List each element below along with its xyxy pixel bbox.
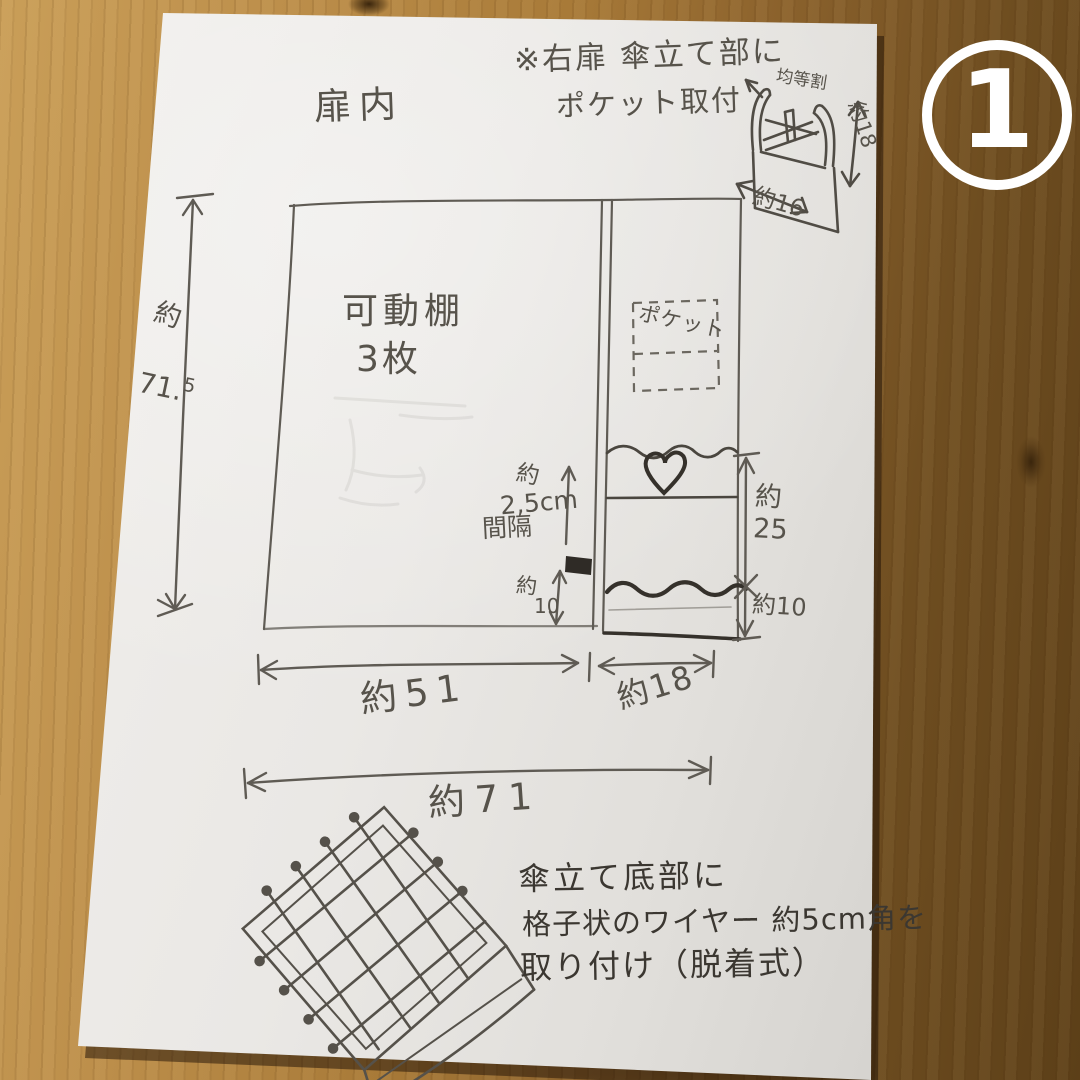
width-total-dim: 約71 <box>427 774 544 826</box>
shelf-count-label: 3枚 <box>356 338 421 381</box>
hook-mark <box>565 556 592 575</box>
photo-of-hand-drawn-plan: 扉内 ※右扉 傘立て部に ポケット取付 均等割 約18 約16 可動棚 3枚 ポ… <box>0 0 1080 1080</box>
page-number-badge: 1 <box>922 40 1072 190</box>
right-upper-dim: 約 25 <box>752 481 790 547</box>
area-label: 扉内 <box>313 82 404 130</box>
bottom-note-line2: 格子状のワイヤー 約5cm角を <box>522 900 928 942</box>
wire-grid-sketch <box>219 786 541 1080</box>
right-door-decor <box>604 446 746 639</box>
cabinet-outline <box>264 199 741 641</box>
divider-bottom-dim-value: 10 <box>534 594 559 618</box>
gap-note-line3: 間隔 <box>481 512 533 545</box>
bottom-note-line1: 傘立て底部に <box>518 856 729 898</box>
bottom-note-line3: 取り付け（脱着式） <box>520 943 827 987</box>
right-lower-dim: 約10 <box>751 590 807 623</box>
page-number: 1 <box>959 57 1034 165</box>
wavy-line-bottom <box>607 582 746 596</box>
top-note-line2: ポケット取付 <box>555 83 742 124</box>
movable-shelf-label: 可動棚 <box>342 290 465 333</box>
erased-text-ghost <box>335 398 472 505</box>
